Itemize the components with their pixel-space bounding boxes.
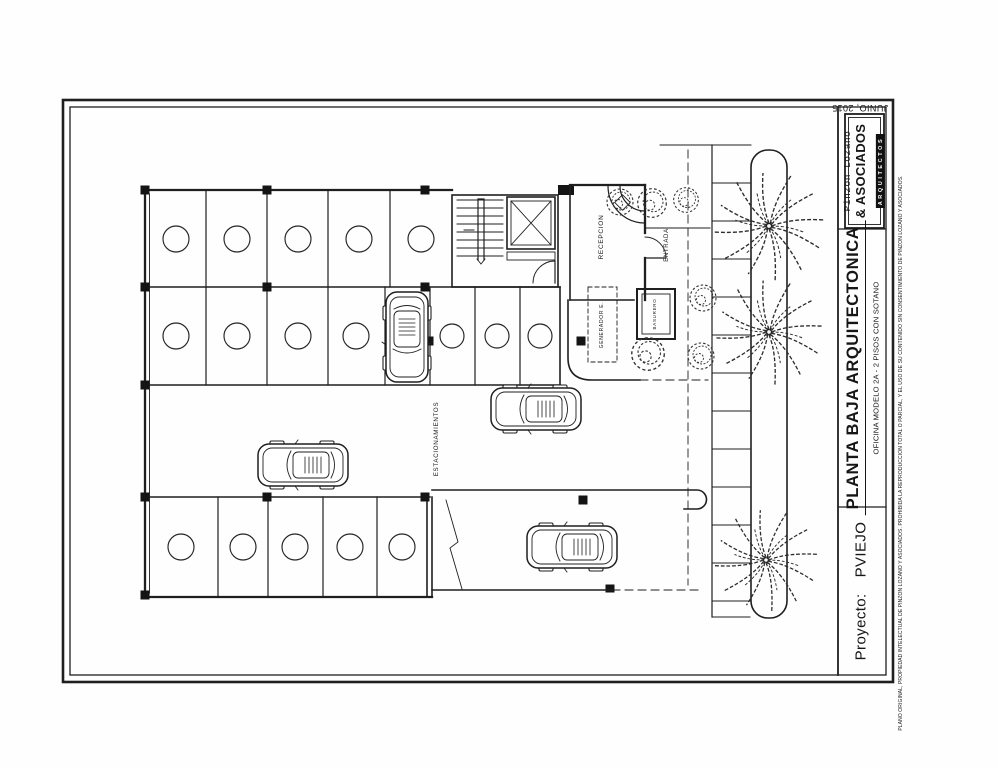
palm-tree [714, 510, 818, 612]
ramp-break-line [446, 500, 462, 589]
drawing-subtitle: OFICINA MODELO 2A - 2 PISOS CON SOTANO [872, 282, 881, 455]
stairs [457, 199, 503, 264]
median-strip [751, 150, 787, 618]
sheet-border [63, 100, 893, 682]
parking-row-middle [163, 287, 552, 385]
generator-label: GENERADOR E. [599, 302, 605, 349]
palm-tree [714, 173, 825, 282]
parking-stall-marker [389, 534, 415, 560]
parking-stall-marker [440, 324, 464, 348]
parking-stall-marker [485, 324, 509, 348]
car-aisle-2 [491, 384, 581, 434]
shrub [674, 188, 699, 213]
reception-room [570, 185, 666, 300]
car-ramp [527, 522, 617, 572]
elevator [507, 197, 555, 260]
palm-tree [716, 281, 824, 387]
project-row: Proyecto:PVIEJO [853, 522, 870, 661]
palm-trees [714, 173, 825, 613]
project-label: Proyecto: [853, 593, 870, 660]
parking-stall-marker [528, 324, 552, 348]
project-name: PVIEJO [853, 522, 870, 578]
parking-stall-marker [230, 534, 256, 560]
parking-label: ESTACIONAMIENTOS [433, 402, 440, 477]
shrub [638, 189, 667, 218]
parking-stall-marker [224, 226, 250, 252]
scanned-plan-sheet: RECEPCION ENTRADA ESTACIONAMIENTOS GENER… [0, 0, 998, 768]
stair-core [452, 195, 558, 287]
drawing-title: PLANTA BAJA ARQUITECTONICA [844, 221, 866, 516]
firm-name-line2: & ASOCIADOS [853, 115, 868, 227]
reception-label: RECEPCION [598, 215, 605, 260]
sheet-date: JUNIO, 2015 [832, 103, 888, 113]
parking-stall-marker [285, 323, 311, 349]
parking-row-bottom [168, 497, 415, 597]
parking-stall-marker [163, 323, 189, 349]
firm-name-line1: Pinzon Lozano [842, 115, 853, 227]
parking-stall-marker [337, 534, 363, 560]
parking-stall-marker [168, 534, 194, 560]
reception-desk [608, 186, 645, 223]
parking-stall-marker [408, 226, 434, 252]
shrubs [607, 188, 716, 371]
trash-room-label: BASURERO [652, 299, 657, 330]
parking-stall-marker [285, 226, 311, 252]
car-parked-stall [382, 292, 432, 382]
parking-stall-marker [343, 323, 369, 349]
parking-stall-marker [163, 226, 189, 252]
firm-logo: Pinzon Lozano & ASOCIADOS ARQUITECTOS [842, 115, 886, 227]
firm-name-line3: ARQUITECTOS [876, 134, 885, 209]
parking-stall-marker [346, 226, 372, 252]
parking-row-top [163, 190, 434, 287]
door-swing [533, 261, 555, 283]
parking-stall-marker [282, 534, 308, 560]
shrub [632, 338, 665, 371]
site-lines [645, 145, 787, 618]
shrub [688, 343, 714, 369]
car-aisle-1 [258, 440, 348, 490]
copyright-notice: PLANO ORIGINAL, PROPIEDAD INTELECTUAL DE… [898, 175, 904, 730]
plan-labels: RECEPCION ENTRADA ESTACIONAMIENTOS GENER… [433, 215, 670, 477]
entrance-door-swing [645, 237, 666, 258]
entrance-label: ENTRADA [664, 228, 670, 262]
parking-stall-marker [224, 323, 250, 349]
